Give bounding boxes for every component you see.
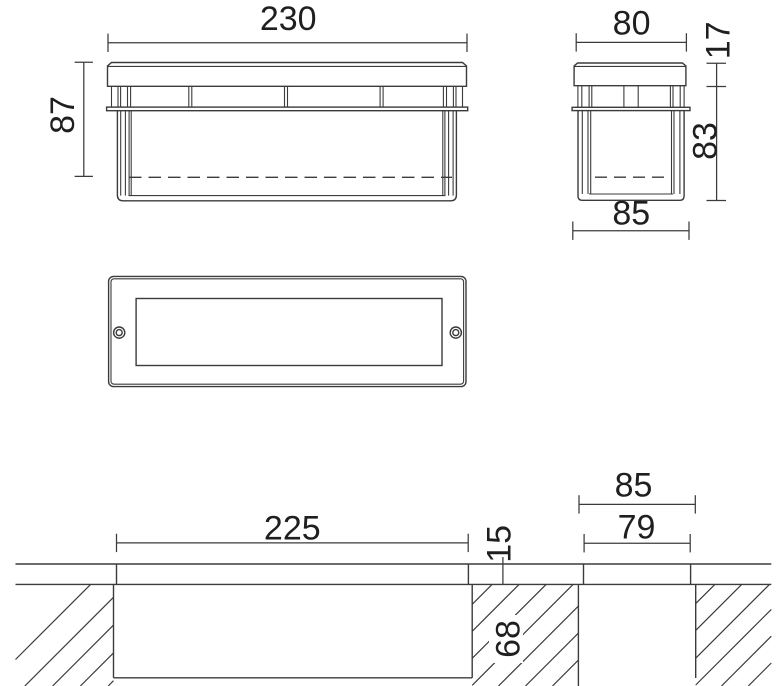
svg-text:87: 87 xyxy=(44,96,82,134)
svg-text:17: 17 xyxy=(700,21,738,59)
svg-text:83: 83 xyxy=(686,122,724,160)
svg-text:80: 80 xyxy=(613,5,651,43)
svg-text:85: 85 xyxy=(612,195,650,233)
svg-text:68: 68 xyxy=(490,620,528,658)
svg-text:79: 79 xyxy=(618,509,656,547)
svg-text:230: 230 xyxy=(260,0,317,38)
svg-text:85: 85 xyxy=(615,467,653,505)
svg-text:225: 225 xyxy=(264,509,321,547)
svg-text:15: 15 xyxy=(481,525,519,563)
